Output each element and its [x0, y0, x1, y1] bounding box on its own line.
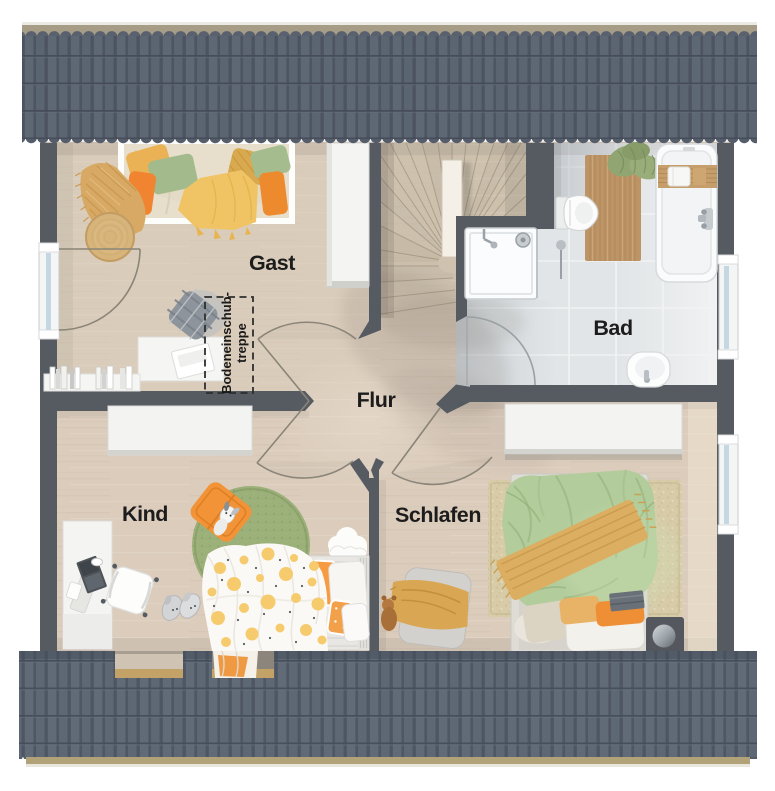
svg-text:Schlafen: Schlafen	[395, 503, 481, 527]
svg-text:treppe: treppe	[234, 323, 249, 363]
svg-text:Flur: Flur	[357, 388, 397, 412]
svg-text:Gast: Gast	[249, 251, 295, 275]
svg-text:Kind: Kind	[122, 502, 168, 526]
svg-text:Bodeneinschub-: Bodeneinschub-	[219, 292, 234, 394]
svg-text:Bad: Bad	[593, 316, 632, 340]
